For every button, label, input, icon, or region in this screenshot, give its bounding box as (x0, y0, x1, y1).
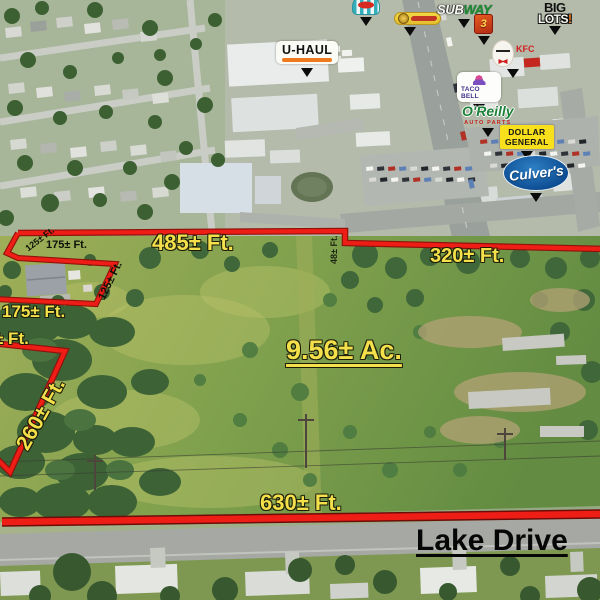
kfc-logo-text: KFC (516, 44, 535, 54)
culvers-logo: Culver's (503, 155, 569, 191)
area-label: 9.56± Ac. (286, 337, 402, 364)
orange-store-logo: 3 (474, 14, 493, 34)
measurement-top-right-edge: 320± Ft. (430, 246, 504, 266)
location-pointer-icon (301, 68, 313, 77)
dollar-general-logo: DOLLAR GENERAL (500, 125, 554, 149)
location-pointer-icon (458, 19, 470, 28)
big-lots-logo-marker: BIG LOTS! (538, 2, 572, 35)
aerial-property-listing: 485± Ft. 320± Ft. 48± Ft. 125± Ft. 175± … (0, 0, 600, 600)
uhaul-orange-bar-icon (282, 58, 332, 62)
location-pointer-icon (507, 69, 519, 78)
measurement-cutout-bottom: 175± Ft. (2, 303, 65, 320)
culvers-logo-marker: Culver's (503, 155, 569, 202)
teal-awning-logo-marker (352, 0, 380, 26)
measurement-left-partial: ± Ft. (0, 330, 29, 347)
gold-coin-icon (398, 13, 409, 24)
orange-store-logo-text: 3 (480, 18, 486, 30)
big-lots-logo-lots-text: LOTS (538, 12, 568, 26)
uhaul-logo-text: U-HAUL (282, 43, 332, 57)
location-pointer-icon (482, 128, 494, 137)
dollar-general-line2: GENERAL (505, 137, 549, 147)
gold-emblem-banner-logo (394, 12, 441, 25)
uhaul-logo: U-HAUL (276, 41, 338, 64)
big-lots-logo-exclaim: ! (568, 12, 572, 26)
kfc-logo: KFC (492, 40, 535, 67)
measurement-bottom-edge: 630± Ft. (260, 492, 342, 514)
red-script-icon (411, 16, 438, 21)
big-lots-logo: BIG LOTS! (538, 2, 572, 24)
taco-bell-logo-text: TACO BELL (461, 86, 497, 100)
red-oval-icon (358, 2, 374, 9)
uhaul-logo-marker: U-HAUL (276, 41, 338, 77)
teal-awning-logo (352, 0, 380, 15)
bell-icon (473, 75, 486, 85)
orange-store-logo-marker: 3 (474, 14, 493, 45)
measurement-top-edge: 485± Ft. (152, 232, 234, 254)
colonel-face-icon (492, 40, 514, 67)
street-name-label: Lake Drive (416, 526, 568, 556)
location-pointer-icon (549, 26, 561, 35)
taco-bell-logo: TACO BELL (457, 72, 501, 102)
oreilly-logo-text: O'Reilly (462, 103, 514, 119)
measurement-cutout-top: 175± Ft. (46, 240, 87, 251)
location-pointer-icon (404, 27, 416, 36)
dollar-general-line1: DOLLAR (508, 127, 545, 137)
gold-emblem-banner-logo-marker (394, 12, 441, 36)
big-lots-logo-lots: LOTS! (538, 14, 572, 25)
location-pointer-icon (530, 193, 542, 202)
location-pointer-icon (360, 17, 372, 26)
measurement-jog-edge: 48± Ft. (330, 236, 339, 264)
oreilly-logo: O'Reilly AUTO PARTS (462, 103, 514, 126)
subway-logo-sub: SUB (437, 2, 464, 17)
location-pointer-icon (478, 36, 490, 45)
culvers-logo-text: Culver's (508, 162, 564, 184)
